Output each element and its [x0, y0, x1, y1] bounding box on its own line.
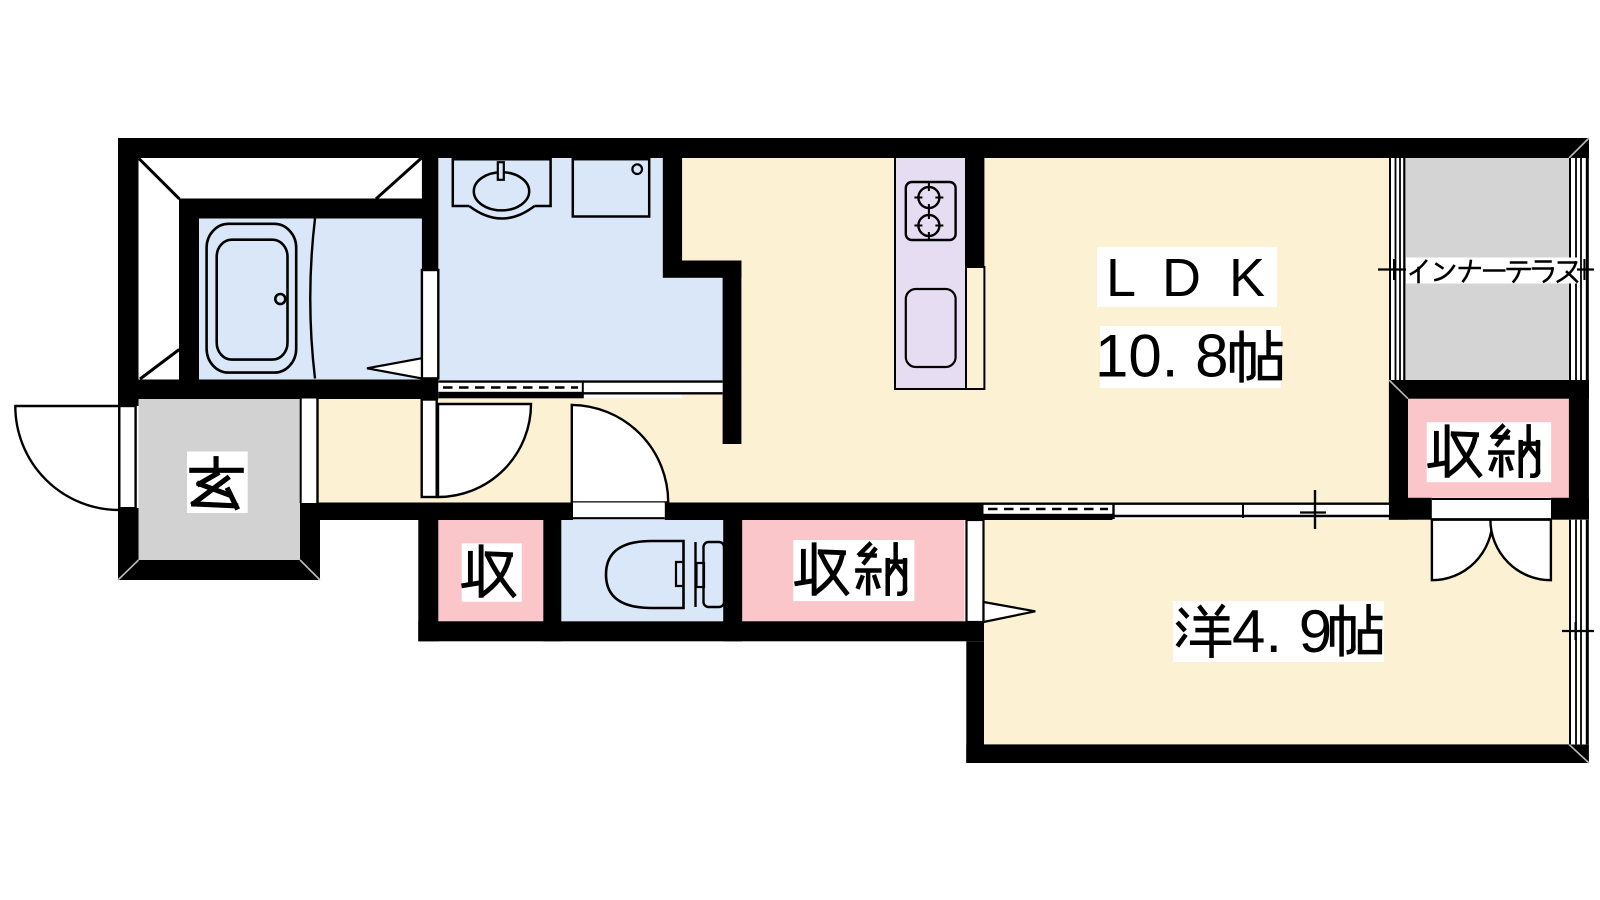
svg-text:L D K: L D K [1106, 248, 1272, 308]
svg-text:4. 9: 4. 9 [1232, 598, 1332, 665]
svg-text:10. 8: 10. 8 [1095, 323, 1228, 390]
